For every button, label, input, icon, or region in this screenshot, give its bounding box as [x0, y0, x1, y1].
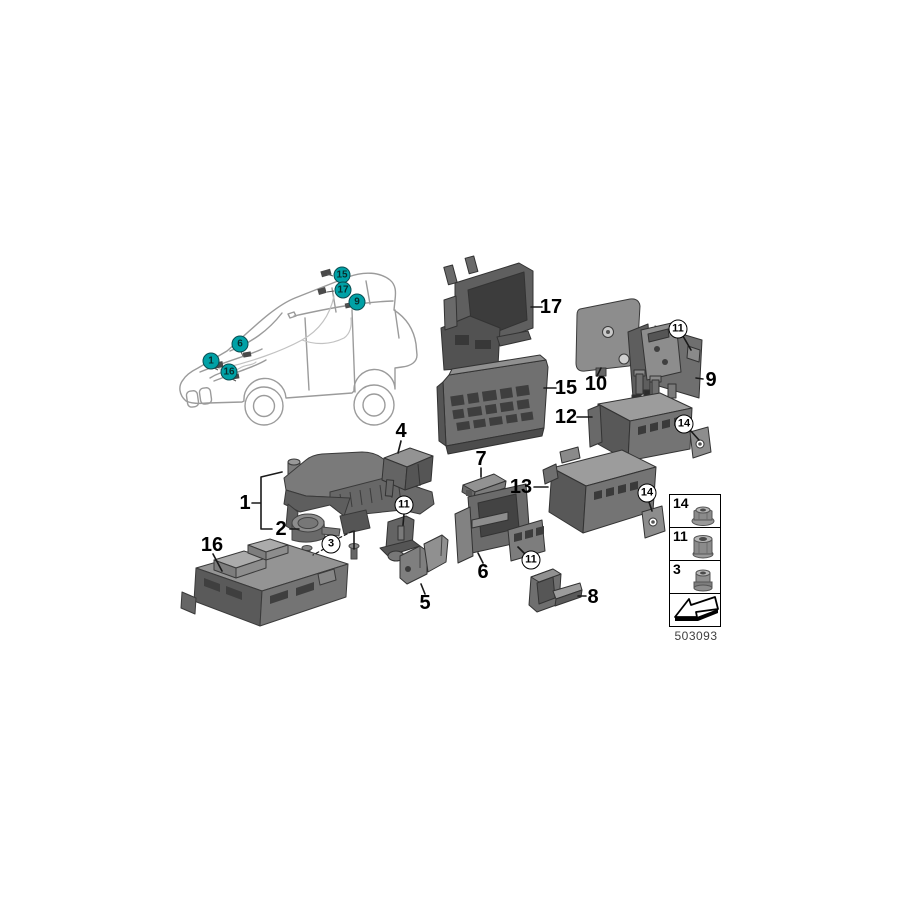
car-callout-1[interactable]: 1	[203, 353, 220, 370]
part-8-illustration	[529, 569, 582, 612]
part-15-illustration	[437, 355, 548, 454]
diagram-artwork	[0, 0, 900, 900]
part-label-6[interactable]: 6	[477, 562, 488, 582]
callout-circle-11-terminal[interactable]: 11	[395, 496, 414, 515]
car-wiring-harness	[216, 296, 351, 371]
part-label-7[interactable]: 7	[475, 449, 486, 469]
part-17-illustration	[441, 256, 533, 370]
direction-arrow-icon	[670, 593, 720, 624]
parts-diagram-page: 17 15 10 9 12 13 1 2 16 4 7 5 6 8 11 14 …	[0, 0, 900, 900]
callout-circle-3-part2[interactable]: 3	[322, 535, 341, 554]
part-label-13[interactable]: 13	[510, 477, 532, 497]
part-label-4[interactable]: 4	[395, 421, 406, 441]
callout-circle-11-part6[interactable]: 11	[522, 551, 541, 570]
part-label-17[interactable]: 17	[540, 297, 562, 317]
diagram-code: 503093	[674, 629, 717, 643]
part-label-15[interactable]: 15	[555, 378, 577, 398]
callout-circle-14-part13[interactable]: 14	[638, 484, 657, 503]
legend-label-3: 3	[673, 562, 681, 576]
car-callout-16[interactable]: 16	[221, 364, 238, 381]
legend-item-11[interactable]: 11	[670, 528, 720, 561]
part-label-8[interactable]: 8	[587, 587, 598, 607]
legend-item-14[interactable]: 14	[670, 495, 720, 528]
part-label-12[interactable]: 12	[555, 407, 577, 427]
bushing-nut-icon	[687, 567, 719, 593]
part-label-9[interactable]: 9	[705, 370, 716, 390]
legend-item-3[interactable]: 3	[670, 561, 720, 594]
callout-circle-14-part12[interactable]: 14	[675, 415, 694, 434]
car-outline-illustration	[180, 273, 417, 425]
flange-nut-icon	[687, 501, 719, 527]
part-label-10[interactable]: 10	[585, 374, 607, 394]
callout-circle-11-part9[interactable]: 11	[669, 320, 688, 339]
part-label-16[interactable]: 16	[201, 535, 223, 555]
part-4-illustration	[382, 448, 433, 496]
hex-nut-icon	[687, 532, 719, 560]
legend-label-11: 11	[673, 529, 688, 543]
legend-item-arrow	[670, 594, 720, 626]
fastener-legend: 14 11 3	[669, 494, 721, 627]
car-callout-6[interactable]: 6	[232, 336, 249, 353]
part-label-1[interactable]: 1	[239, 493, 250, 513]
car-callout-9[interactable]: 9	[349, 294, 366, 311]
car-callout-17[interactable]: 17	[335, 282, 352, 299]
part-label-2[interactable]: 2	[275, 519, 286, 539]
part-label-5[interactable]: 5	[419, 593, 430, 613]
car-component-marks	[214, 269, 352, 380]
